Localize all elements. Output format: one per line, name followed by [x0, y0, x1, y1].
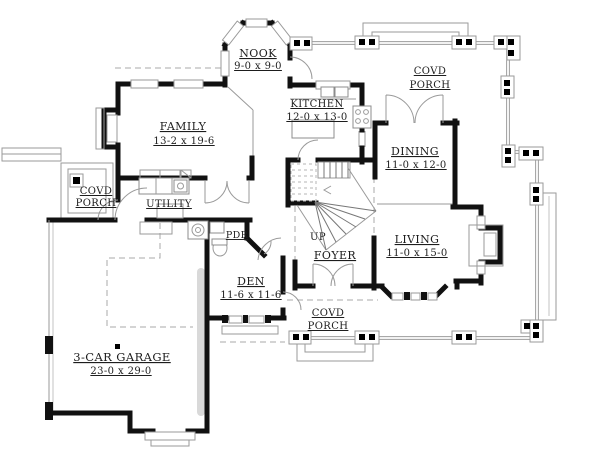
kitchen-sink: [321, 87, 334, 97]
foyer-label: FOYER: [314, 249, 357, 262]
living-dims: 11-0 x 15-0: [386, 248, 447, 259]
porch-left-label-2: PORCH: [76, 198, 117, 209]
dining-door-left: [386, 95, 414, 123]
nook-porch-door: [290, 57, 312, 79]
kitchen-range: [353, 106, 371, 128]
kitchen-label: KITCHEN: [290, 99, 343, 110]
family-label: FAMILY: [160, 120, 207, 133]
dining-dims: 11-0 x 12-0: [385, 160, 446, 171]
dining-door-right: [415, 95, 443, 123]
garage-label: 3-CAR GARAGE: [73, 350, 170, 364]
garage-dims: 23-0 x 29-0: [90, 366, 151, 377]
pdr-label: PDR: [226, 230, 249, 241]
porch-left-label-1: COVD: [80, 186, 113, 197]
utility-sink: [174, 180, 187, 192]
living-label: LIVING: [395, 233, 440, 246]
floor-plan: NOOK 9-0 x 9-0 COVD PORCH KITCHEN 12-0 x…: [0, 0, 600, 464]
porch-top-label-2: PORCH: [410, 80, 451, 91]
kitchen-dims: 12-0 x 13-0: [286, 112, 347, 123]
nook-dims: 9-0 x 9-0: [234, 61, 282, 72]
den-dims: 11-6 x 11-6: [220, 290, 281, 301]
staircase: [291, 162, 376, 250]
utility-label: UTILITY: [146, 199, 192, 210]
porch-bottom-label-2: PORCH: [308, 321, 349, 332]
porch-top-label-1: COVD: [414, 66, 447, 77]
den-label: DEN: [237, 275, 265, 288]
stair-hall-door: [298, 140, 318, 160]
nook-label: NOOK: [239, 47, 277, 60]
den-foyer-door: [283, 292, 301, 310]
dining-label: DINING: [391, 145, 439, 158]
garage-column-marker: [115, 344, 120, 349]
porch-bottom-label-1: COVD: [312, 308, 345, 319]
stairs-up-label: UP: [310, 232, 326, 243]
hall-door-right: [227, 181, 249, 203]
family-dims: 13-2 x 19-6: [153, 136, 214, 147]
stair-direction-arrow: [324, 186, 331, 194]
garage-door: [145, 432, 195, 446]
floor-plan-drawing: NOOK 9-0 x 9-0 COVD PORCH KITCHEN 12-0 x…: [0, 0, 600, 464]
hall-door-left: [205, 181, 227, 203]
garage-side-strip: [197, 268, 205, 416]
